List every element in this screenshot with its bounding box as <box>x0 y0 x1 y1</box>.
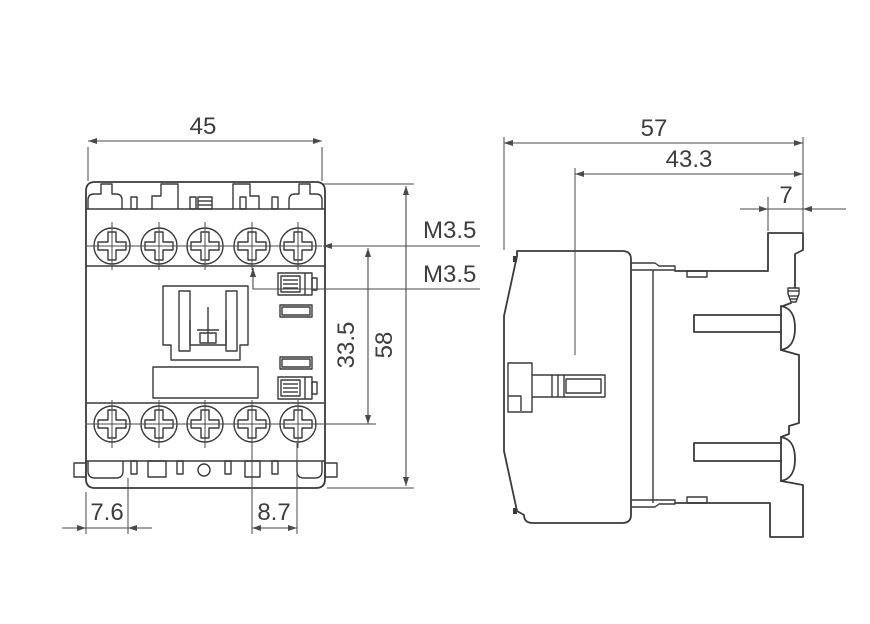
dim-body-depth-label: 43.3 <box>666 146 713 173</box>
aux-terminal-bottom <box>278 377 317 399</box>
dim-offset-left-label: 7.6 <box>90 499 123 526</box>
side-view <box>504 233 803 537</box>
contactor-dimension-drawing: 45 57 43.3 7 M3.5 M3.5 33.5 58 7.6 8.7 <box>0 0 870 624</box>
rear-plate-outline <box>675 233 803 288</box>
rear-edge-middle <box>781 350 799 437</box>
label-plate <box>153 367 258 398</box>
dim-depth-label: 57 <box>641 115 668 142</box>
front-base-cutouts <box>74 461 337 478</box>
mold-mark-bottom <box>513 508 517 514</box>
aux-terminal-thread-label: M3.5 <box>423 261 476 288</box>
drain-hole <box>198 464 210 476</box>
main-terminal-thread-label: M3.5 <box>423 217 476 244</box>
front-top-band-cutouts <box>88 184 322 209</box>
dim-contact-span-label: 33.5 <box>333 322 360 369</box>
coil-terminal-screw <box>508 363 605 412</box>
dim-front-height-label: 58 <box>371 332 398 359</box>
mounting-foot-bottom <box>694 437 795 481</box>
aux-terminal-top <box>278 273 317 295</box>
contact-carrier-window <box>163 286 248 360</box>
side-front-block-outline <box>504 251 631 523</box>
rear-edge-upper <box>783 303 791 306</box>
dim-pitch-label: 8.7 <box>257 499 290 526</box>
mounting-foot-top <box>694 306 795 350</box>
rear-plate-lower <box>675 481 803 537</box>
mold-mark-top <box>513 256 517 262</box>
dim-rail-step-label: 7 <box>779 182 792 209</box>
mounting-ear-left <box>74 463 86 477</box>
aux-vent-slots <box>280 305 312 369</box>
rail-clip-screw-top <box>788 288 799 302</box>
front-view <box>74 182 376 488</box>
drawing-canvas: 45 57 43.3 7 M3.5 M3.5 33.5 58 7.6 8.7 <box>0 0 870 624</box>
adjuster-screw-top <box>198 197 212 209</box>
dim-front-width-label: 45 <box>190 113 217 140</box>
mounting-ear-right <box>325 463 337 477</box>
top-shelf <box>631 263 675 270</box>
